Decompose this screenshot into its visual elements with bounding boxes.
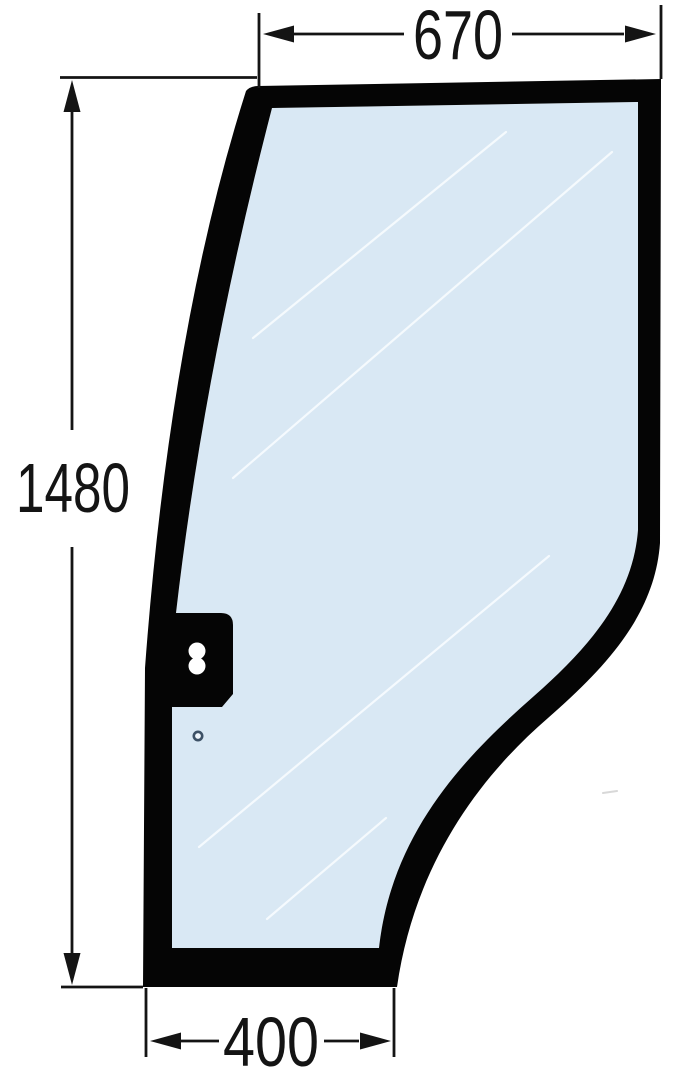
technical-drawing-canvas: 670 1480 xyxy=(0,0,700,1085)
dim-height-arrow-up xyxy=(64,80,81,112)
door-glass-drawing: 670 1480 xyxy=(0,0,700,1085)
dim-height-arrow-down xyxy=(64,953,81,985)
dim-bottom-arrow-left xyxy=(150,1033,181,1050)
dim-bottom-width-value: 400 xyxy=(223,1003,319,1081)
artifact-speck xyxy=(603,791,617,793)
dim-top-arrow-left xyxy=(263,26,294,43)
dim-bottom-width: 400 xyxy=(146,988,394,1081)
dim-bottom-arrow-right xyxy=(360,1033,391,1050)
dim-top-arrow-right xyxy=(625,26,656,43)
mounting-hole xyxy=(194,732,202,740)
keyhole-upper-circle xyxy=(189,643,206,660)
mounting-hole-ring xyxy=(194,732,202,740)
dim-top-width-value: 670 xyxy=(413,0,503,74)
keyhole-lower-circle xyxy=(189,658,206,675)
dim-overall-height-value: 1480 xyxy=(16,449,130,527)
dim-top-width: 670 xyxy=(259,0,661,88)
